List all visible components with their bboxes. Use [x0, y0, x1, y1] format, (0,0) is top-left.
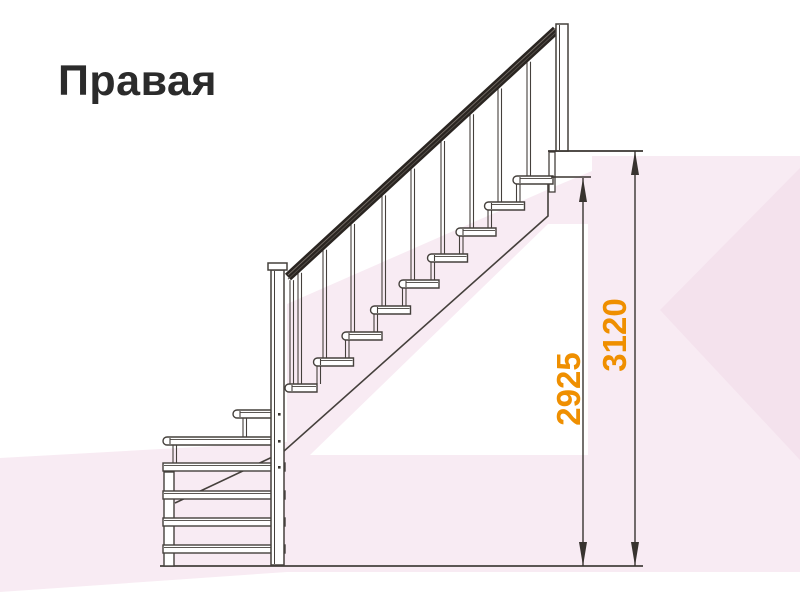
dimension-label-2925: 2925: [550, 352, 587, 425]
diagram-canvas: Правая 2925 3120: [0, 0, 800, 600]
top-landing-plate: [549, 152, 555, 192]
middle-newel-post: [271, 270, 284, 565]
winder-tread: [163, 518, 285, 526]
flight-tread: [513, 176, 553, 184]
flight-tread: [371, 306, 411, 314]
post-screw-dot: [278, 466, 281, 469]
flight-tread: [456, 228, 496, 236]
middle-post-cap: [268, 263, 287, 270]
winder-tread: [163, 463, 285, 471]
flight-tread: [428, 254, 468, 262]
top-newel-post: [556, 24, 568, 151]
dimension-label-3120: 3120: [596, 298, 633, 371]
post-screw-dot: [278, 440, 281, 443]
background-watermark: [0, 156, 800, 600]
flight-tread: [342, 332, 382, 340]
winder-tread: [163, 545, 285, 553]
post-screw-dot: [278, 413, 281, 416]
staircase-diagram: 2925 3120: [0, 0, 800, 600]
winder-tread: [163, 491, 285, 499]
winder-tread: [233, 410, 272, 418]
flight-tread: [399, 280, 439, 288]
flight-tread: [314, 358, 354, 366]
flight-tread: [285, 384, 317, 392]
winder-tread: [163, 437, 272, 445]
flight-tread: [485, 202, 525, 210]
